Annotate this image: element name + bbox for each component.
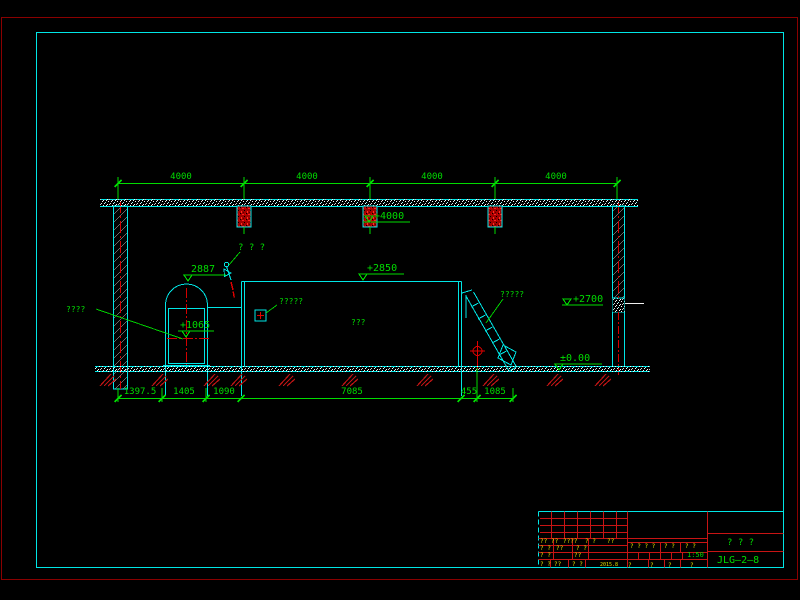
label-valve: ? ? ? xyxy=(238,243,265,253)
leader-vessel xyxy=(96,309,183,339)
top-dim-label: 4000 xyxy=(545,172,567,182)
bottom-dim-label: 1405 xyxy=(173,387,195,397)
cad-drawing: 4000400040004000 1397.514051090708545510… xyxy=(0,0,800,600)
nozzle-box xyxy=(255,310,266,321)
level-plus2850-text: +2850 xyxy=(367,263,397,274)
label-vessel: ???? xyxy=(66,305,85,314)
title-block-text: ? ? xyxy=(540,561,551,568)
title-block-text: ? xyxy=(690,562,694,569)
leader-lines xyxy=(96,252,503,339)
drawing-number: JLG—2—8 xyxy=(717,555,759,566)
level-2887: 2887 xyxy=(183,264,226,281)
title-block-text: ? ? xyxy=(540,552,551,559)
bottom-dim-label: 7085 xyxy=(341,387,363,397)
title-block-text: ?? xyxy=(607,538,615,545)
annotation-labels: ? ? ?????????????????? xyxy=(66,243,524,327)
title-block-text: ? ? xyxy=(585,538,596,545)
leader-ladder xyxy=(486,299,503,323)
title-block-text: ? ? ? ? xyxy=(630,543,656,550)
level-plus2850: +2850 xyxy=(359,263,404,280)
bottom-dim-label: 1090 xyxy=(213,387,235,397)
roof-slab xyxy=(100,199,638,207)
title-block-text: ? xyxy=(668,562,672,569)
top-dim-label: 4000 xyxy=(296,172,318,182)
drawing-frame xyxy=(37,33,784,568)
left-wall xyxy=(114,201,128,389)
level-plus1065: +1065 xyxy=(178,320,214,337)
bottom-dim-label: 455 xyxy=(461,387,477,397)
ground-line xyxy=(95,366,650,372)
title-block-text: ? ? xyxy=(540,545,551,552)
label-ladder: ????? xyxy=(500,290,524,299)
cad-drawing-canvas: 4000400040004000 1397.514051090708545510… xyxy=(0,0,800,600)
column-1 xyxy=(237,206,251,227)
level-plus2700: +2700 xyxy=(562,294,603,305)
dome-vessel xyxy=(163,284,241,396)
ladder xyxy=(462,290,517,371)
title-block-text: ? xyxy=(650,562,654,569)
drawing-title: ? ? ? xyxy=(727,538,754,548)
title-block-text: ?? xyxy=(540,538,548,545)
title-block-text: ?? xyxy=(556,545,564,552)
level-plus2700-text: +2700 xyxy=(573,294,603,305)
bottom-dim-label: 1085 xyxy=(484,387,506,397)
label-nozzle: ????? xyxy=(279,297,303,306)
title-block-text: ? ? xyxy=(576,545,587,552)
top-dim-label: 4000 xyxy=(421,172,443,182)
title-block-text: ? ? xyxy=(572,561,583,568)
title-block-text: ???? xyxy=(563,538,578,545)
bottom-dim-label: 1397.5 xyxy=(124,387,157,397)
leader-valve xyxy=(229,252,240,265)
title-block-text: ?? xyxy=(551,538,559,545)
level-plus1065-text: +1065 xyxy=(180,320,210,331)
valve-red-marks xyxy=(231,282,234,298)
label-tank: ??? xyxy=(351,318,366,327)
title-block-text: ?? xyxy=(574,552,582,559)
level-2887-text: 2887 xyxy=(191,264,215,275)
soil-hatch xyxy=(100,374,611,386)
title-block: ????????? ???? ???? ?? ???? ???? ?2015.8… xyxy=(539,512,784,570)
title-block-text: ?? xyxy=(554,561,562,568)
title-block-text: ? ? xyxy=(685,543,696,550)
top-dimension-labels: 4000400040004000 xyxy=(170,172,567,182)
right-wall xyxy=(613,201,645,375)
columns xyxy=(237,206,502,234)
target-symbol xyxy=(470,341,485,369)
bottom-dimension-labels: 1397.51405109070854551085 xyxy=(124,387,506,397)
column-3 xyxy=(488,206,502,227)
top-dim-label: 4000 xyxy=(170,172,192,182)
leader-nozzle xyxy=(266,305,277,313)
date-text: 2015.8 xyxy=(600,562,618,568)
title-block-text: ? xyxy=(628,562,632,569)
scale-value: 1:50 xyxy=(687,551,704,559)
level-zero-text: ±0.00 xyxy=(560,353,590,364)
valve-symbol xyxy=(224,262,234,297)
level-plus4000-text: +4000 xyxy=(374,211,404,222)
title-block-text: ? ? xyxy=(664,543,675,550)
